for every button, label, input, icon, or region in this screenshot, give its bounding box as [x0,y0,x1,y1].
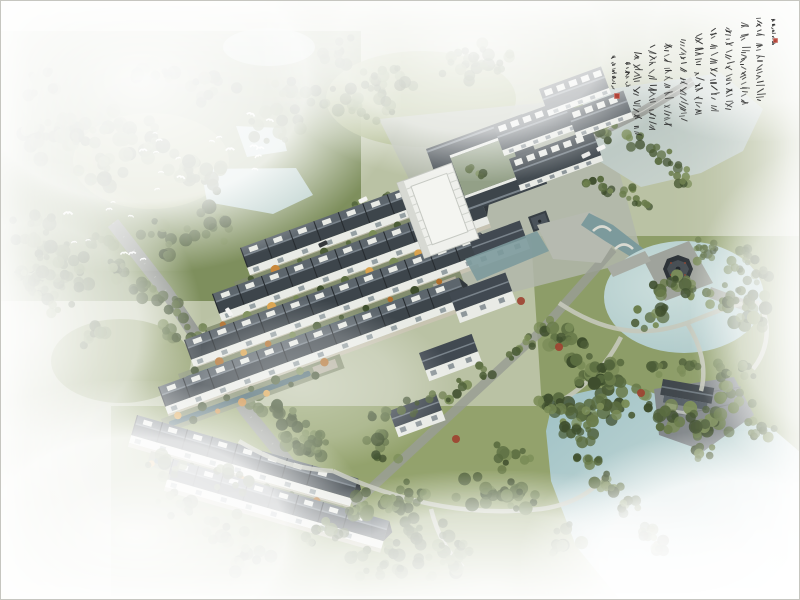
calligraphy-column [648,46,657,132]
calligraphy-column [679,38,688,124]
calligraphy-column [611,55,616,88]
far-north-pond [223,28,315,66]
calligraphy-inscription [559,5,795,155]
calligraphy-column [755,17,764,103]
calligraphy-column [694,34,703,120]
bird [158,171,163,172]
calligraphy-column [740,21,749,107]
header-seal [773,38,778,43]
calligraphy-column [724,25,733,111]
calligraphy-column [663,42,672,128]
calligraphy-column [633,51,642,137]
signature-seal [614,93,620,99]
rendering-canvas [0,0,800,600]
bird [64,212,73,214]
calligraphy-column [625,61,630,88]
calligraphy-column [709,30,718,116]
